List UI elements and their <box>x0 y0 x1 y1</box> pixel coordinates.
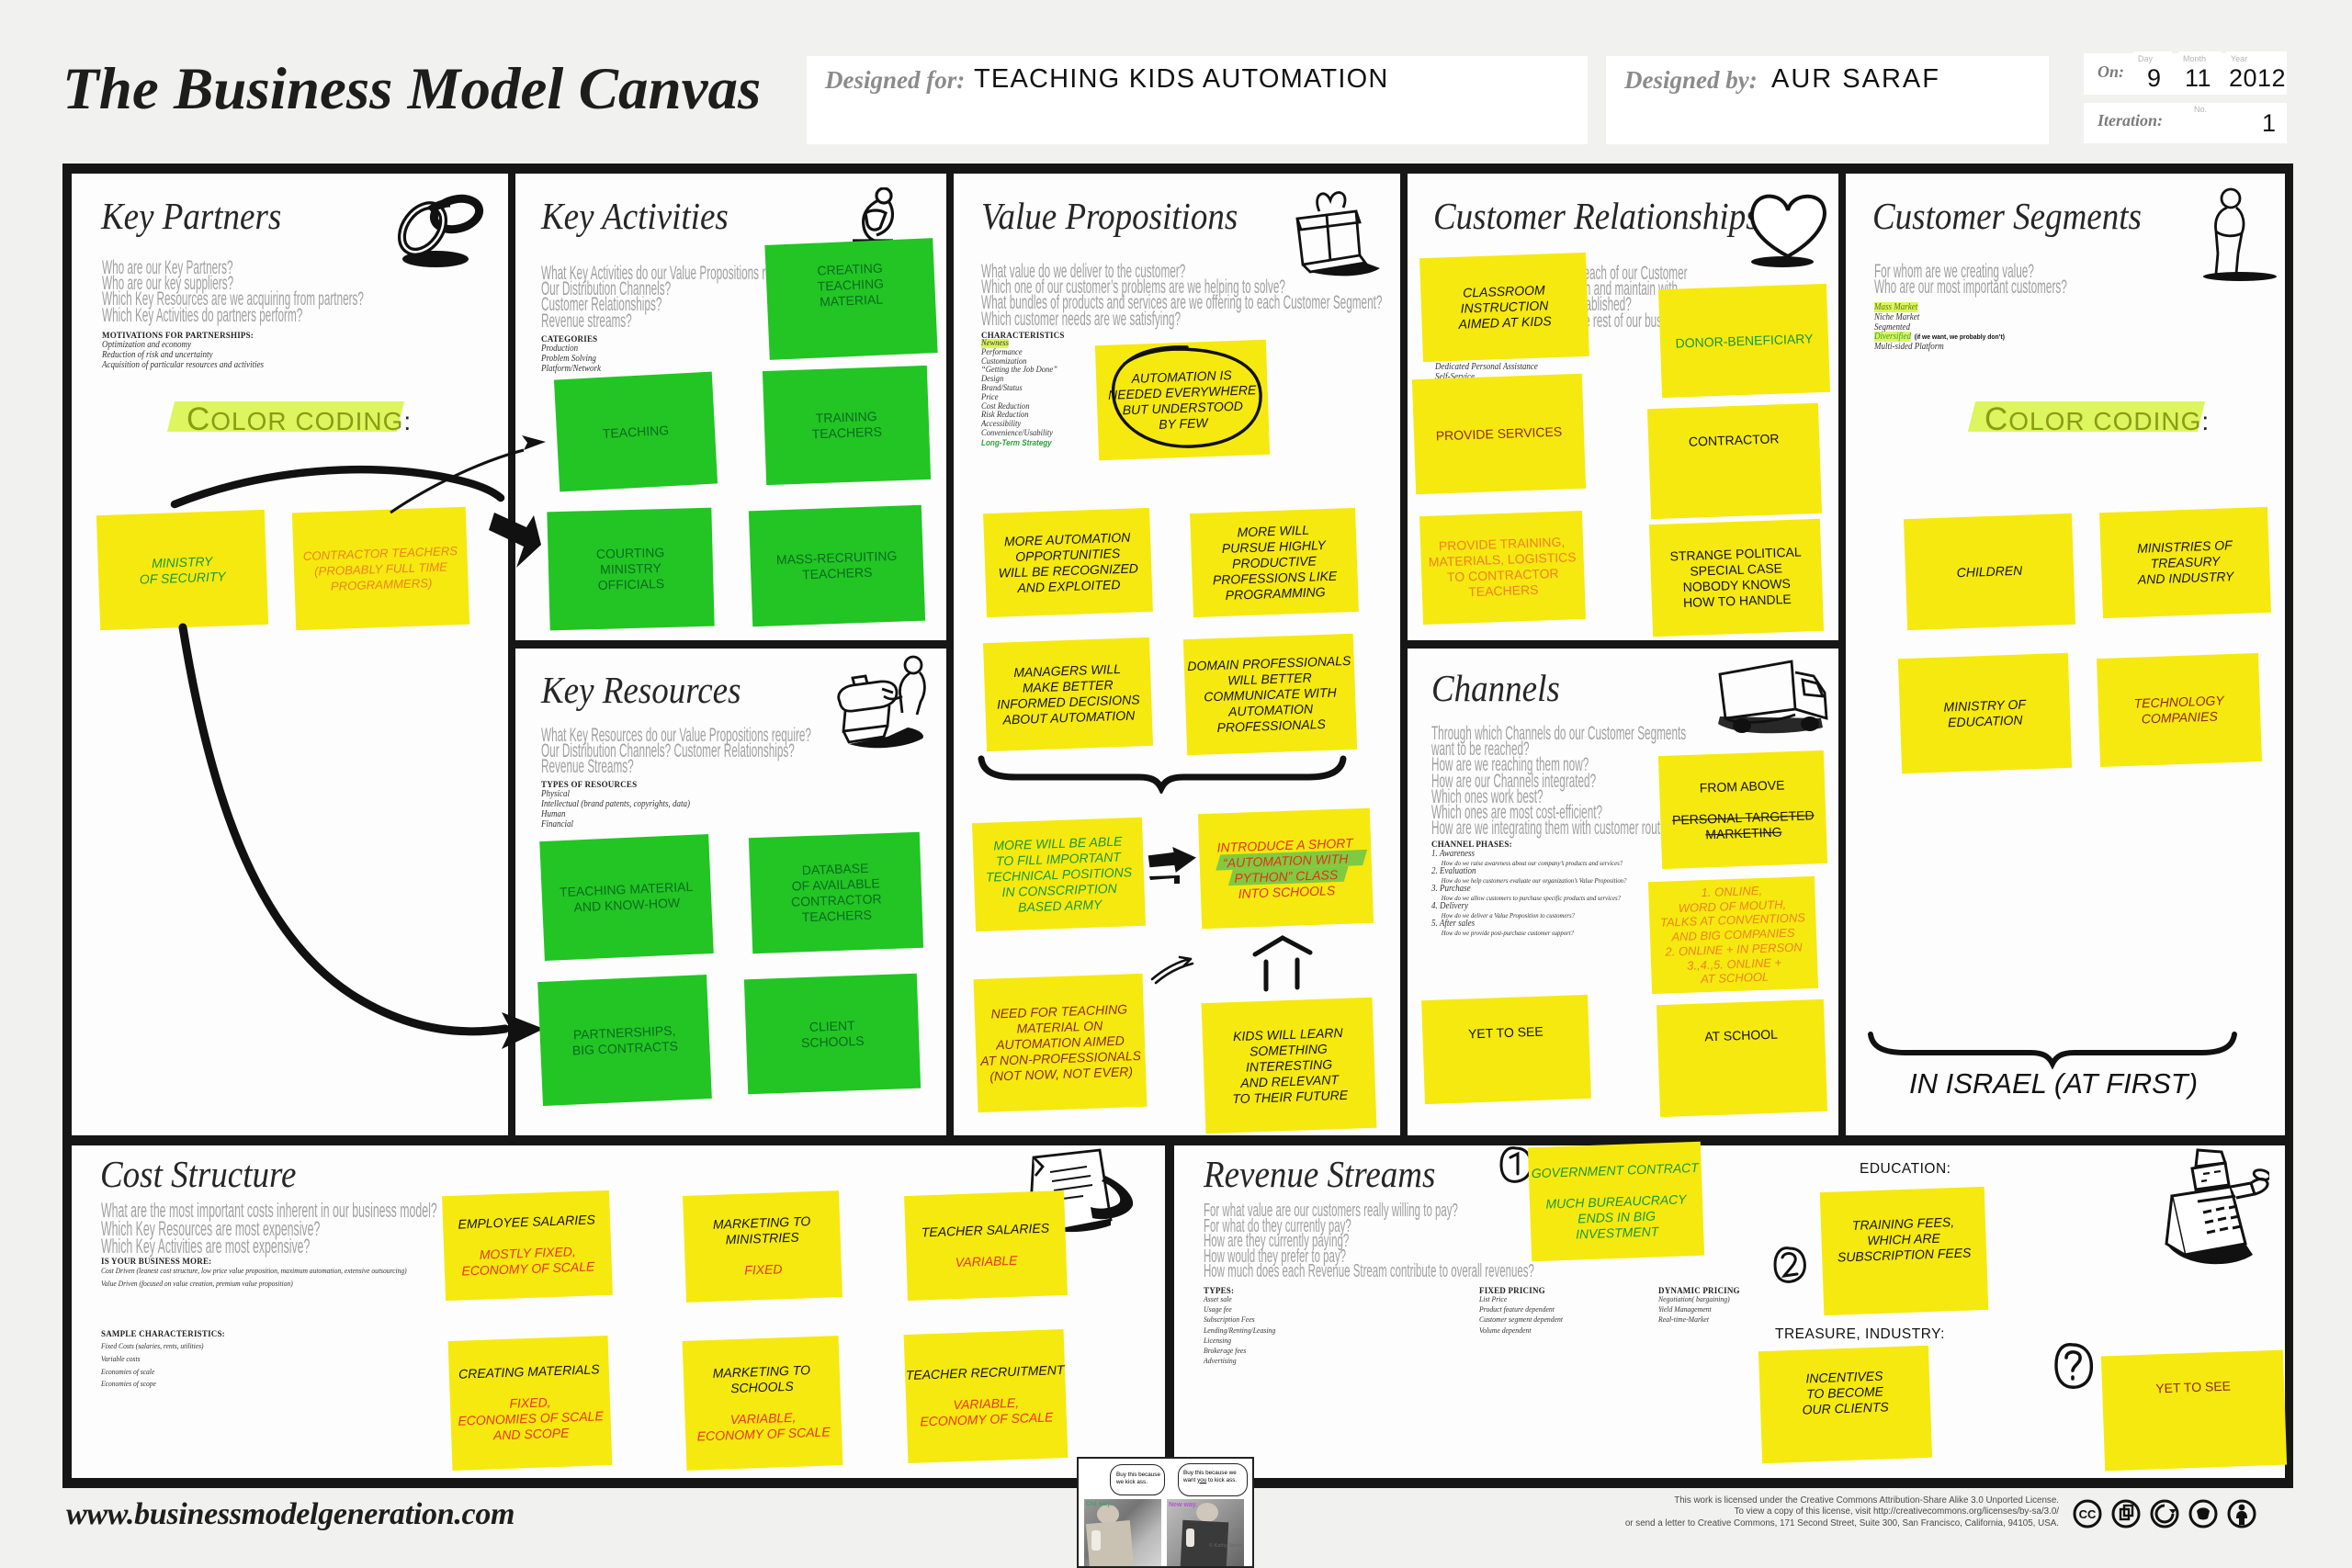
svg-text:CC: CC <box>2079 1507 2097 1521</box>
